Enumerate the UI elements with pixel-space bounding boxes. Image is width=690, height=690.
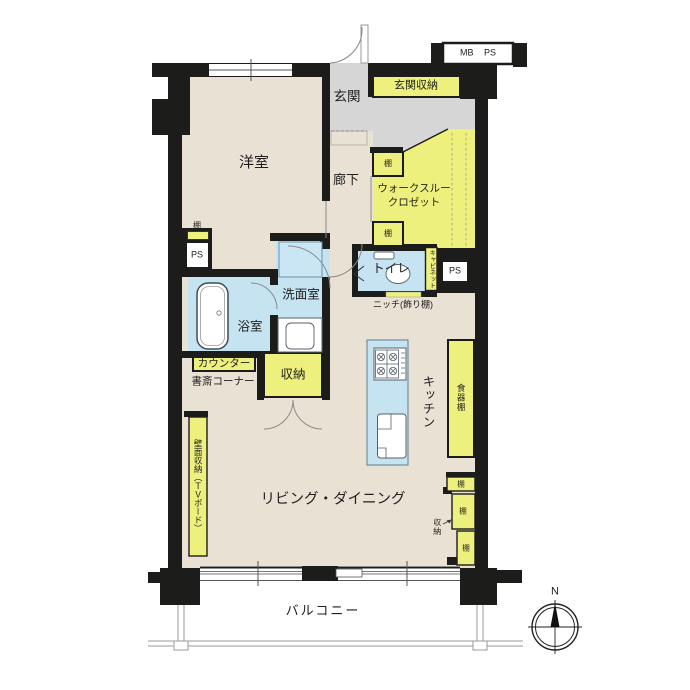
label-se-shelf-1: 棚	[457, 480, 465, 489]
label-se-shelf-3: 棚	[462, 544, 470, 553]
compass-icon	[528, 600, 582, 654]
label-rouka: 廊下	[333, 172, 359, 188]
label-shelf-closet-top: 棚	[384, 159, 392, 169]
shelf-strip-left	[188, 232, 209, 240]
label-mb-ps: MB PS	[460, 48, 496, 59]
label-mb: MB	[460, 48, 474, 58]
label-yoshitsu: 洋室	[239, 154, 269, 172]
label-ps-right: PS	[449, 266, 461, 277]
vanity-icon	[279, 242, 322, 277]
bathtub-icon	[197, 283, 228, 349]
label-shokkidana: 食器棚	[456, 384, 466, 413]
label-shuno-se: 収納	[432, 518, 442, 536]
label-kitchen: キッチン	[420, 375, 435, 429]
floor-plan: 玄関 玄関収納 MB PS 洋室 廊下 棚 PS 棚 棚 ウォークスルー クロゼ…	[0, 0, 690, 690]
label-shuno-hall: 収納	[280, 368, 305, 383]
sink-icon	[378, 414, 407, 458]
label-balcony: バルコニー	[286, 603, 361, 619]
label-living: リビング・ダイニング	[261, 491, 406, 508]
kitchen-island	[367, 340, 408, 465]
label-genkan-storage: 玄関収納	[394, 79, 438, 92]
niche-strip	[386, 292, 421, 297]
label-yokushitsu: 浴室	[237, 320, 262, 335]
label-north: N	[551, 585, 559, 598]
label-ps-meter: PS	[484, 48, 496, 58]
compass-needle	[551, 603, 560, 627]
label-kabemen: 壁面収納（ＴＶボード）	[193, 439, 203, 533]
label-ps-left: PS	[191, 250, 203, 261]
label-shelf-closet-bottom: 棚	[384, 229, 392, 239]
label-walkthrough-closet: ウォークスルー クロゼット	[377, 182, 450, 209]
label-genkan: 玄関	[334, 89, 361, 105]
label-se-shelf-2: 棚	[459, 507, 467, 516]
label-toilet: トイレ	[372, 262, 410, 277]
label-shelf-left: 棚	[193, 221, 201, 231]
label-niche: ニッチ(飾り棚)	[373, 300, 433, 311]
label-shosai: 書斎コーナー	[192, 376, 255, 389]
label-counter: カウンター	[198, 358, 251, 371]
stove-icon	[374, 348, 406, 380]
entry-step	[331, 131, 367, 145]
label-senmen: 洗面室	[282, 288, 320, 303]
washer-icon	[278, 318, 322, 352]
label-cabinet: キャビネット	[427, 250, 435, 289]
